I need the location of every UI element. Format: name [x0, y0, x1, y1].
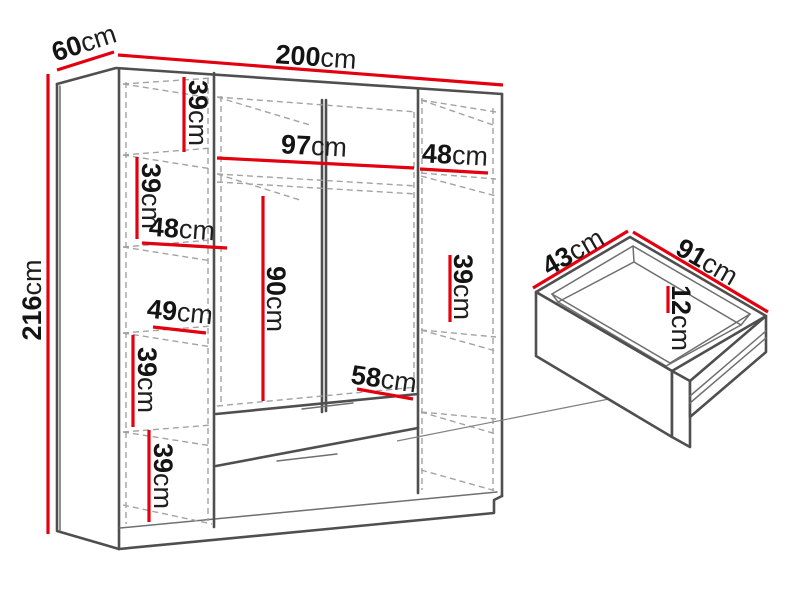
- right-shelf-3: [421, 412, 496, 434]
- dim-left-shelf5: 39cm: [148, 443, 178, 509]
- diagram-canvas: 200cm 60cm 216cm 39cm 39cm 48cm 49cm 39c…: [0, 0, 800, 600]
- dim-middle-width: 97cm: [280, 129, 348, 162]
- middle-top-panel: [217, 97, 417, 125]
- right-shelf-1: [421, 173, 496, 196]
- dim-left-width: 48cm: [148, 212, 216, 247]
- dim-left-shelf4: 39cm: [132, 347, 162, 413]
- dim-left-shelf1: 39cm: [183, 80, 213, 146]
- dim-right-shelf-height: 39cm: [448, 254, 478, 320]
- dim-drawer-height: 12cm: [666, 285, 696, 351]
- furniture-dimension-diagram: 200cm 60cm 216cm 39cm 39cm 48cm 49cm 39c…: [0, 0, 800, 600]
- drawer-front-panel-end: [672, 371, 690, 447]
- dim-wardrobe-width: 200cm: [275, 39, 358, 75]
- dim-middle-hanging-height: 90cm: [261, 266, 291, 332]
- wardrobe-drawers: [216, 394, 418, 466]
- left-side-edge: [57, 84, 119, 549]
- drawer-handle-bottom: [277, 454, 337, 461]
- dim-wardrobe-height: 216cm: [17, 259, 47, 340]
- right-shelf-2: [421, 330, 496, 351]
- dim-right-width: 48cm: [421, 138, 489, 171]
- drawer-pointer-line: [397, 398, 614, 441]
- right-top-panel: [421, 100, 496, 126]
- drawer-detail: 43cm 91cm 12cm: [533, 222, 768, 447]
- dim-left-shelf3: 49cm: [146, 294, 215, 331]
- middle-shelf: [217, 174, 417, 200]
- drawer-divider-edge: [216, 428, 418, 466]
- wardrobe: 200cm 60cm 216cm 39cm 39cm 48cm 49cm 39c…: [17, 19, 503, 549]
- dashed-line: [421, 470, 496, 491]
